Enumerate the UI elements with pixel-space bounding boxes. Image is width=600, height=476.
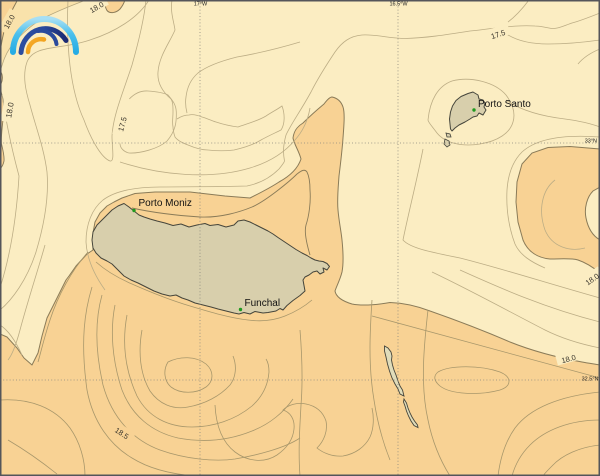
svg-text:32.5°N: 32.5°N — [582, 377, 599, 383]
svg-text:Porto Moniz: Porto Moniz — [139, 198, 192, 209]
svg-text:Porto Santo: Porto Santo — [478, 99, 531, 110]
svg-text:Funchal: Funchal — [245, 298, 281, 309]
svg-text:33°N: 33°N — [585, 139, 597, 145]
svg-text:16.5°W: 16.5°W — [389, 2, 408, 8]
svg-text:17°W: 17°W — [194, 2, 208, 8]
